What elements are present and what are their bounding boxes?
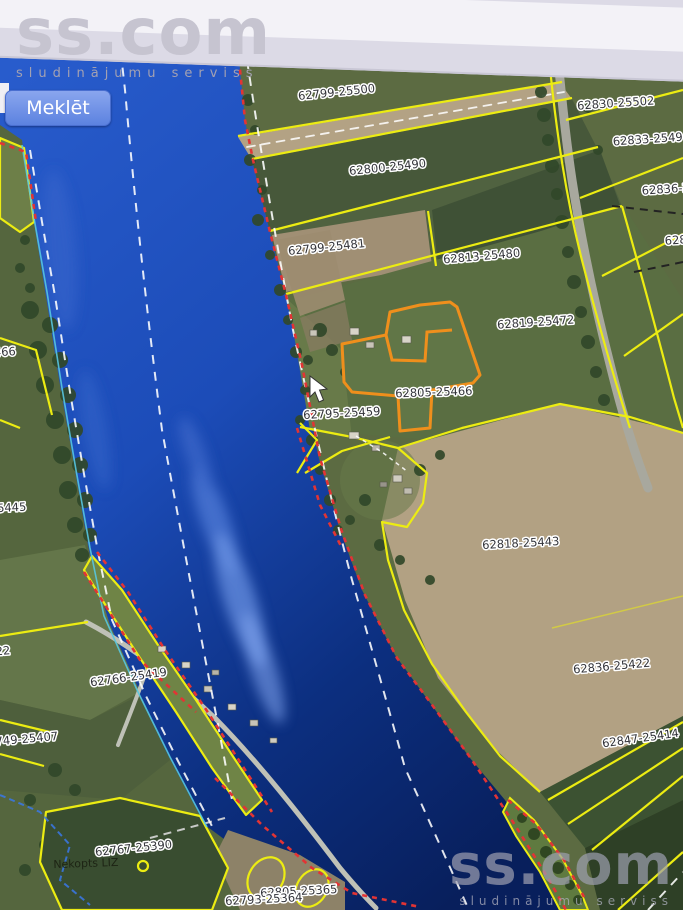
cadastral-map[interactable]: 62799-25500 62830-25502 62833-2549 62836… [0,0,683,910]
parcel-label: 62805-25466 [395,384,473,401]
parcel-label: 628 [664,232,683,247]
search-button[interactable]: Meklēt [5,90,111,126]
parcel-label: 25445 [0,500,27,516]
map-viewport[interactable]: 62799-25500 62830-25502 62833-2549 62836… [0,0,683,910]
parcel-label: 22 [0,643,11,658]
parcel-label: 466 [0,344,16,359]
parcel-label: 62836-2 [641,180,683,197]
area-label-nekopts-liz: Nekopts LIZ [53,856,119,871]
